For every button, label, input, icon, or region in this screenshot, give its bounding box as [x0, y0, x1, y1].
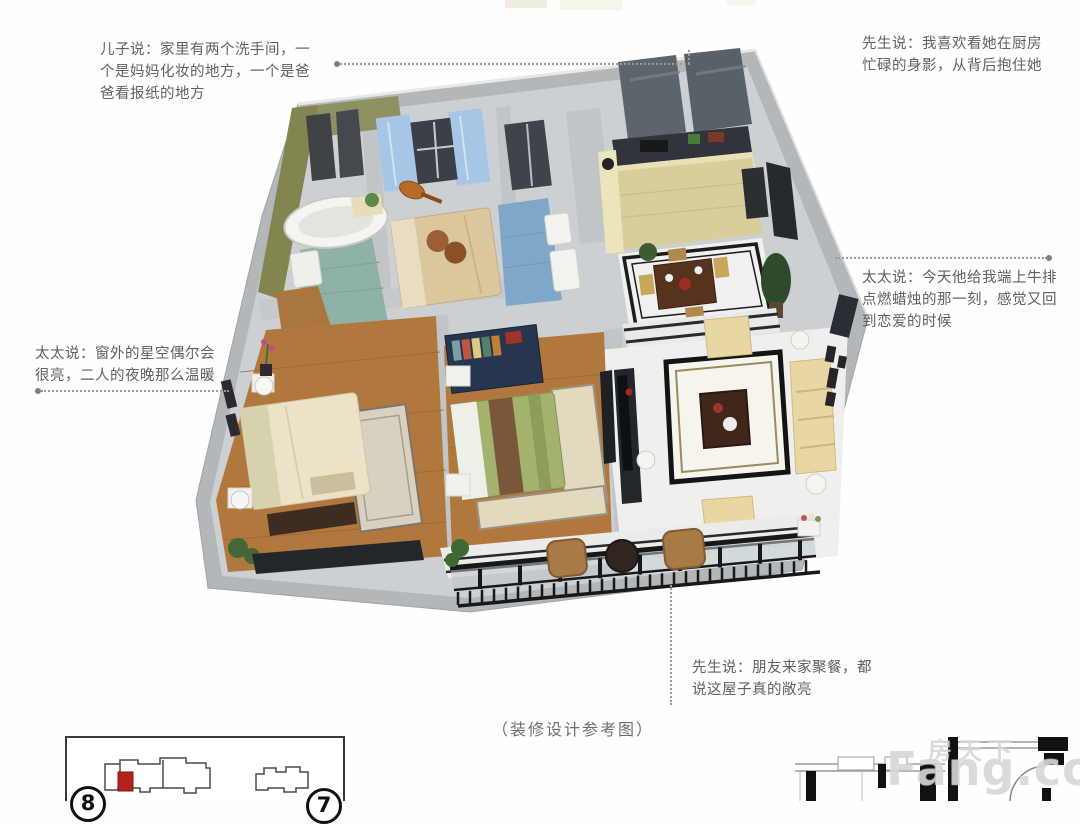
- balcony-chair: [546, 538, 588, 578]
- annotation-wife-steak: 太太说：今天他给我端上牛排点燃蜡烛的那一刻，感觉又回到恋爱的时候: [862, 268, 1060, 333]
- unit-number-8: 8: [70, 786, 106, 822]
- annotation-wife-stars: 太太说：窗外的星空偶尔会很亮，二人的夜晚那么温暖: [35, 344, 221, 388]
- leader-line-son-stub: [688, 50, 690, 64]
- bedroom-center: [444, 325, 616, 552]
- nightstand: [446, 366, 470, 386]
- bed-kids: [390, 207, 501, 308]
- annotation-husband-guests: 先生说：朋友来家聚餐，都说这屋子真的敞亮: [692, 658, 876, 702]
- table-lamp: [255, 377, 273, 395]
- plant: [445, 553, 459, 567]
- flower-planter: [798, 513, 821, 536]
- plant: [639, 243, 657, 261]
- annotation-husband-kitchen: 先生说：我喜欢看她在厨房忙碌的身影，从背后抱住她: [862, 34, 1048, 78]
- bed-master: [239, 392, 370, 509]
- leader-line-guests: [670, 585, 672, 705]
- cooktop: [640, 140, 668, 152]
- balcony-chair: [662, 528, 706, 570]
- nightstand: [446, 474, 470, 496]
- caption-reference-note: （装修设计参考图）: [492, 716, 654, 740]
- leader-dot: [1046, 255, 1052, 261]
- table-lamp: [231, 491, 249, 509]
- watermark-fang: Fang.com: [886, 742, 1080, 796]
- floorplan-3d-rendering: [0, 0, 1080, 801]
- leader-line-son: [340, 63, 690, 65]
- unit-number-7: 7: [306, 788, 342, 824]
- balcony-table: [606, 540, 638, 572]
- plant: [365, 193, 379, 207]
- annotation-son: 儿子说：家里有两个洗手间，一个是妈妈化妆的地方，一个是爸爸看报纸的地方: [100, 40, 324, 105]
- coffee-table: [700, 390, 750, 448]
- floorplan-page: { "annotations": { "son": "儿子说：家里有两个洗手间，…: [0, 0, 1080, 801]
- leader-line-wife-steak: [835, 257, 1047, 259]
- kitchen-floor: [610, 158, 762, 250]
- leader-line-wife-stars: [41, 390, 229, 392]
- highlighted-unit: [118, 772, 133, 791]
- washer: [290, 250, 322, 288]
- armchair-top: [704, 316, 752, 358]
- unit-locator-inset: [66, 737, 344, 801]
- window-left: [618, 55, 686, 140]
- window-right: [684, 48, 752, 132]
- top-edge-remnant: [505, 0, 756, 10]
